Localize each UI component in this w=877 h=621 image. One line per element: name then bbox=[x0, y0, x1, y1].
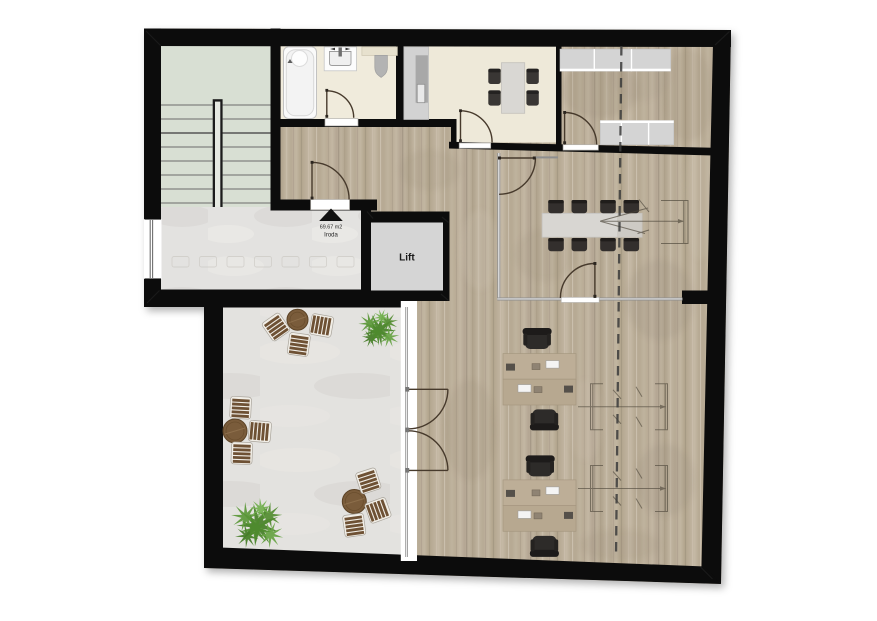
svg-text:Iroda: Iroda bbox=[324, 232, 338, 238]
svg-text:69.67 m2: 69.67 m2 bbox=[320, 225, 342, 231]
svg-text:Lift: Lift bbox=[399, 253, 415, 264]
